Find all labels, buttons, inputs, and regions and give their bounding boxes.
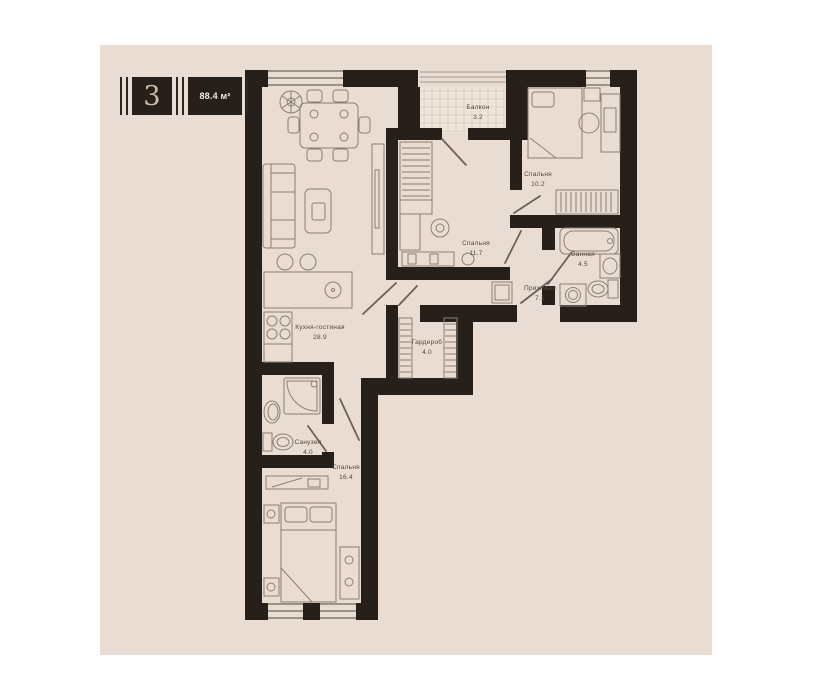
hall-cabinet [492, 282, 512, 303]
wardrobe-cabinet [400, 142, 432, 214]
bed-bottom [281, 503, 336, 602]
badge-rule [182, 77, 184, 115]
door-bedroom-top [514, 196, 540, 213]
room-label-kitchen-living: Кухня-гостиная 28.9 [288, 324, 352, 343]
kitchen-island [264, 254, 352, 308]
badge-rule [176, 77, 178, 115]
window [268, 604, 303, 618]
room-label-wc: Санузел 4.0 [286, 439, 330, 458]
shower [284, 378, 320, 414]
tv-stand [372, 144, 384, 254]
wc-sink [264, 401, 280, 423]
room-label-bedroom-top: Спальня 10.2 [508, 171, 568, 190]
nightstand-bottom-b [264, 578, 279, 596]
window [268, 71, 343, 85]
room-label-hallway: Прихожая 7.1 [514, 285, 566, 304]
room-label-bedroom-middle: Спальня 11.7 [448, 240, 504, 259]
room-label-wardrobe: Гардероб 4.0 [400, 339, 454, 358]
balcony-floor [420, 72, 506, 133]
badge-rule [246, 77, 248, 115]
door-vestibule [340, 399, 359, 440]
total-area: 88.4 м² [199, 91, 230, 101]
door-wardrobe [399, 286, 417, 305]
dining-table [288, 90, 370, 161]
room-label-balcony: Балкон 3.2 [448, 104, 508, 123]
wardrobe-rail-top [556, 190, 618, 214]
total-area-badge: 88.4 м² [188, 77, 242, 115]
nightstand-bottom-a [264, 505, 279, 523]
plan-number: 3 [143, 81, 160, 112]
door-balcony [442, 139, 466, 165]
page: { "badge": { "number": "3", "area": "88.… [0, 0, 814, 700]
room-label-bathroom: Ванная 4.5 [557, 251, 609, 270]
cabinet-bottom [340, 547, 359, 599]
plan-badge: 3 88.4 м² [120, 77, 248, 115]
desk-top [579, 94, 620, 152]
desk-middle [400, 214, 449, 250]
window [586, 71, 610, 85]
plan-number-badge: 3 [132, 77, 172, 115]
room-label-bedroom-bottom: Спальня 16.4 [320, 464, 372, 483]
plant [280, 91, 302, 113]
badge-rule [120, 77, 122, 115]
badge-rule [126, 77, 128, 115]
window [320, 604, 356, 618]
sofa [263, 164, 295, 248]
door-bedroom-middle [505, 231, 521, 263]
coffee-table [305, 189, 331, 233]
dresser-bottom [266, 476, 328, 489]
nightstand-top [584, 88, 600, 101]
bed-top [528, 88, 582, 158]
toilet-bath [588, 280, 618, 298]
